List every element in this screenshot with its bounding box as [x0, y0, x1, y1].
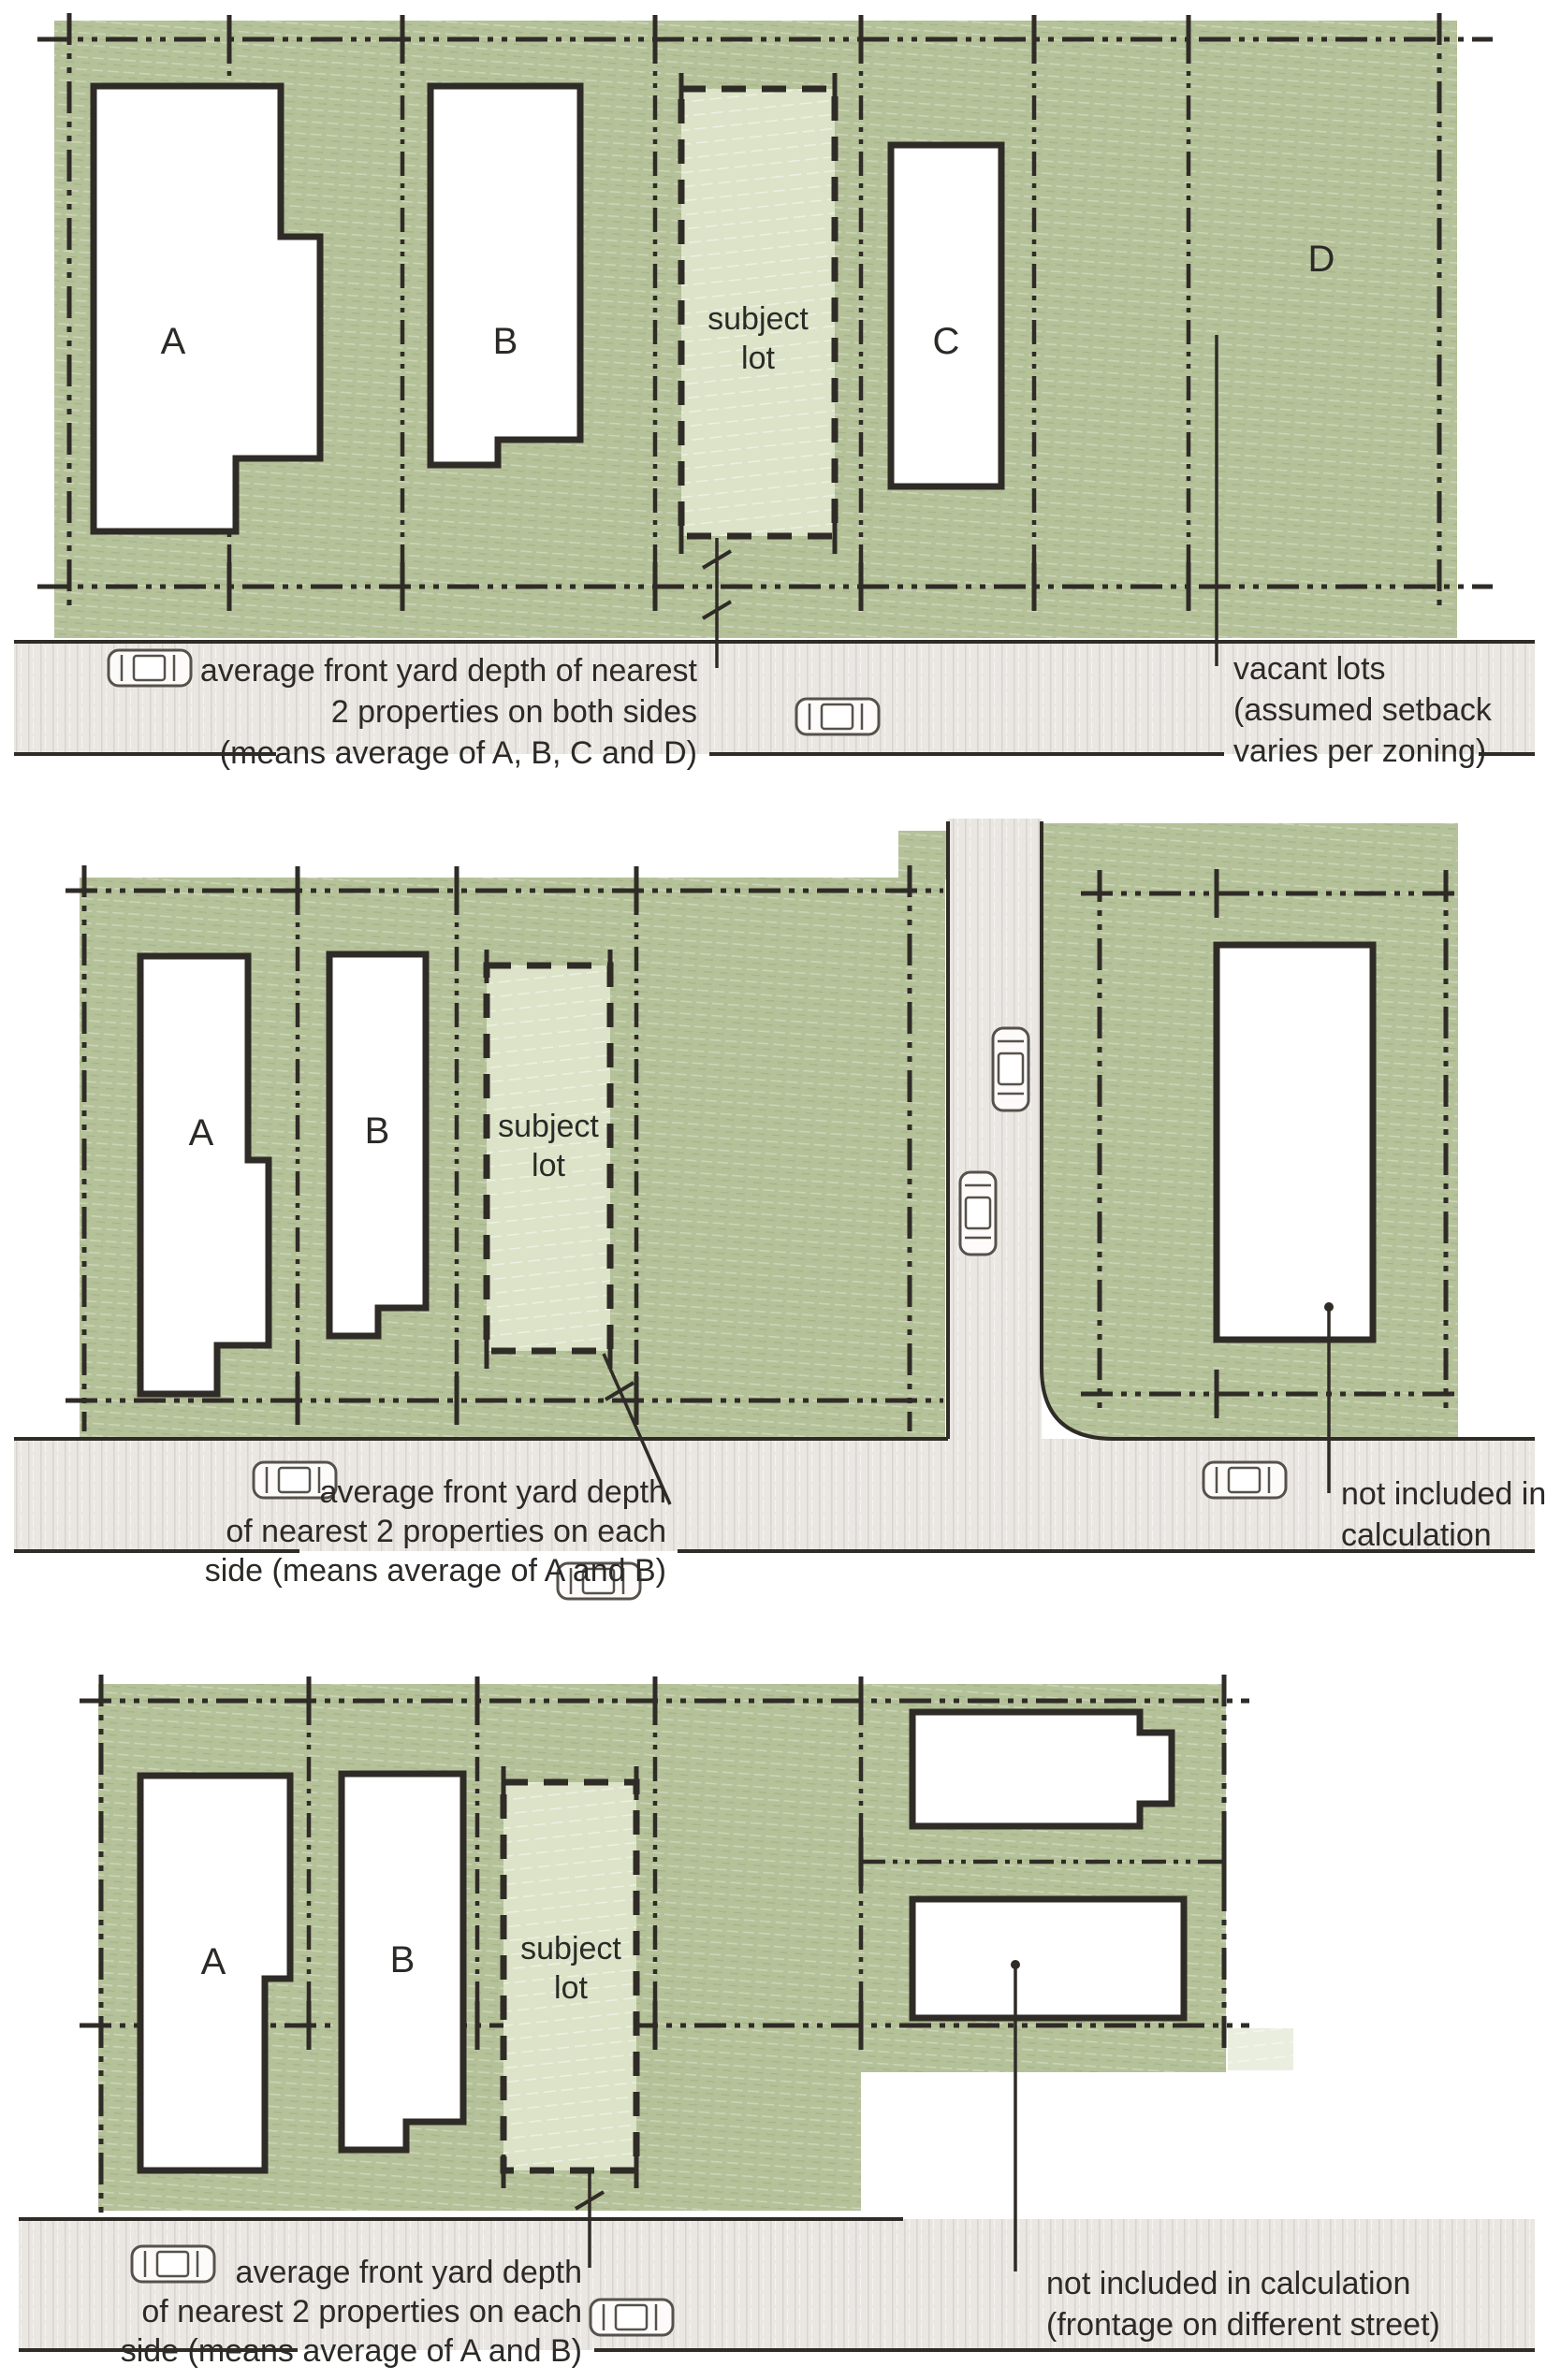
svg-text:2 properties on both sides: 2 properties on both sides	[331, 694, 697, 730]
building-across-street	[1217, 945, 1373, 1340]
svg-text:(means average of A, B, C and: (means average of A, B, C and D)	[220, 735, 697, 771]
car-icon	[132, 2246, 214, 2282]
building-b	[430, 86, 580, 465]
lot-label-a: A	[189, 1112, 214, 1154]
lot-label-a: A	[201, 1941, 226, 1982]
svg-text:side (means average of A and B: side (means average of A and B)	[205, 1553, 666, 1589]
building-other-street-upper	[912, 1712, 1172, 1826]
parkway-hint	[1228, 2028, 1293, 2070]
lot-label-b: B	[390, 1939, 416, 1981]
svg-text:vacant lots: vacant lots	[1233, 651, 1386, 687]
svg-text:(frontage on different street): (frontage on different street)	[1046, 2307, 1440, 2343]
svg-text:of nearest 2 properties on eac: of nearest 2 properties on each	[141, 2294, 582, 2329]
svg-text:subject: subject	[707, 301, 809, 337]
zoning-diagram: A B C D subject lot average front yard d…	[0, 0, 1546, 2380]
zoning-diagram-page: A B C D subject lot average front yard d…	[0, 0, 1546, 2380]
panel-bottom: A B subject lot average front yard depth…	[19, 1675, 1535, 2369]
building-other-street-lower	[912, 1899, 1184, 2018]
svg-text:subject: subject	[520, 1931, 621, 1966]
svg-text:lot: lot	[554, 1970, 588, 2006]
svg-text:average front yard depth: average front yard depth	[320, 1474, 666, 1510]
svg-text:calculation: calculation	[1341, 1517, 1492, 1553]
svg-text:lot: lot	[532, 1148, 565, 1183]
svg-text:not included in: not included in	[1341, 1476, 1546, 1512]
car-icon	[591, 2300, 673, 2335]
lot-label-d: D	[1308, 239, 1335, 280]
panel-top: A B C D subject lot average front yard d…	[14, 13, 1535, 771]
svg-text:subject: subject	[498, 1109, 599, 1144]
svg-text:varies per zoning): varies per zoning)	[1233, 733, 1486, 769]
svg-text:side (means average of A and B: side (means average of A and B)	[121, 2333, 582, 2369]
panel-middle: A B subject lot average front yard depth…	[14, 819, 1546, 1599]
parkway-strip	[898, 831, 948, 879]
svg-text:average front yard depth of ne: average front yard depth of nearest	[200, 653, 698, 689]
svg-text:not included in calculation: not included in calculation	[1046, 2266, 1410, 2301]
car-icon	[1203, 1462, 1286, 1498]
lot-label-c: C	[933, 321, 960, 362]
car-icon	[960, 1172, 996, 1255]
car-icon	[993, 1028, 1028, 1110]
lot-label-b: B	[493, 321, 518, 362]
cross-street	[948, 819, 1042, 1439]
svg-text:lot: lot	[741, 341, 775, 376]
svg-text:of nearest 2 properties on eac: of nearest 2 properties on each	[226, 1514, 666, 1549]
svg-text:average front yard depth: average front yard depth	[236, 2255, 582, 2290]
svg-text:(assumed setback: (assumed setback	[1233, 692, 1493, 728]
building-c	[891, 145, 1001, 486]
lot-label-b: B	[365, 1110, 390, 1152]
car-icon	[796, 699, 879, 734]
building-a	[140, 956, 269, 1394]
lot-label-a: A	[161, 321, 186, 362]
car-icon	[109, 650, 191, 686]
